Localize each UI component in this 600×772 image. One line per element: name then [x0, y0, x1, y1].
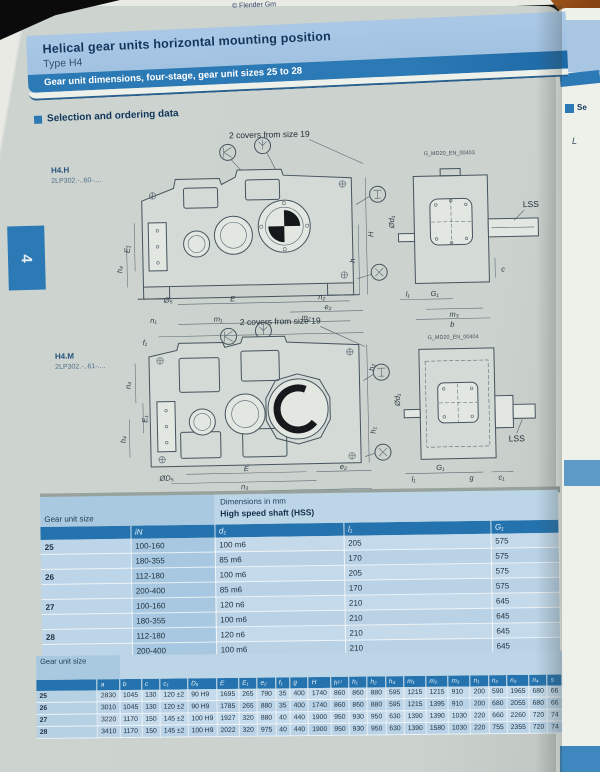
- dim-label: G₁: [430, 289, 439, 298]
- column-header: m₁: [404, 676, 426, 687]
- table-cell: 2260: [507, 709, 529, 721]
- table-cell: 440: [290, 724, 308, 736]
- table-cell: 200: [470, 698, 488, 710]
- technical-drawings: H4.H 2LP302.-..60-.... 2 covers from siz…: [24, 118, 564, 501]
- table-cell: 145 ±2: [160, 713, 188, 725]
- table-cell: 660: [489, 710, 507, 722]
- table-cell: 400: [290, 688, 308, 700]
- dim-label: n₄: [123, 382, 132, 389]
- dim-label: l₁: [411, 474, 416, 483]
- dim-label: E₁: [140, 415, 149, 423]
- end-view-h4h: LSS Ød₁ l₁ G₁ m₃ b c: [386, 167, 542, 330]
- drawing-h4m: H4.M 2LP302.-..61-.... 2 covers from siz…: [54, 311, 537, 502]
- table-cell: 595: [385, 687, 403, 699]
- table-cell: 630: [386, 723, 404, 735]
- table-cell: 590: [488, 686, 506, 698]
- table-cell: 400: [290, 700, 308, 712]
- dimension-table: Gear unit size abcc₁D₅EE₁e₂f₁gHh¹⁾h₁h₂h₄…: [36, 650, 563, 739]
- table-cell: 27: [41, 598, 131, 614]
- table-cell: 28: [37, 726, 98, 739]
- table-cell: 26: [41, 568, 131, 584]
- table-cell: 1030: [448, 710, 470, 722]
- table-cell: 150: [142, 725, 160, 737]
- table-cell: 680: [489, 698, 507, 710]
- dim-label: G₁: [436, 463, 445, 472]
- table-cell: 1740: [308, 699, 330, 711]
- dim-label: h₄: [115, 266, 124, 273]
- section-bullet-square: [34, 115, 42, 123]
- table-cell: 1030: [448, 722, 470, 734]
- dim-label: h₄: [119, 436, 128, 443]
- table-cell: 220: [470, 710, 488, 722]
- page-curvature-shadow: [536, 6, 562, 772]
- order-code: 2LP302.-..61-....: [55, 363, 105, 371]
- table-cell: 120 ±2: [160, 689, 188, 701]
- end-view-h4m: LSS Ød₁ l₁ G₁ g c₁: [392, 347, 537, 484]
- table-cell: 120 ±2: [160, 701, 188, 713]
- dim-label: E₁: [123, 245, 132, 253]
- hss-table: Gear unit size Dimensions in mm High spe…: [40, 490, 560, 660]
- table-cell: 40: [276, 724, 291, 736]
- table-cell: 180-355: [131, 552, 215, 568]
- table-cell: 25: [36, 690, 97, 702]
- table-cell: 790: [257, 688, 275, 700]
- column-header: n₁: [470, 675, 488, 686]
- table-cell: 880: [257, 700, 275, 712]
- table-cell: 1395: [426, 698, 448, 710]
- table-cell: 910: [448, 686, 470, 698]
- dim-label: Ø₅: [163, 296, 173, 305]
- column-header: n₃: [507, 675, 529, 686]
- table-cell: 1045: [120, 701, 142, 713]
- table-cell: 265: [239, 700, 257, 712]
- table-cell: 950: [331, 711, 349, 723]
- table-cell: 860: [331, 699, 349, 711]
- table-cell: 930: [349, 723, 367, 735]
- column-header: b: [119, 679, 141, 690]
- table-cell: 1580: [426, 722, 448, 734]
- table-cell: 320: [239, 724, 257, 736]
- table-cell: 40: [276, 712, 291, 724]
- table-cell: 1170: [120, 713, 142, 725]
- covers-note: 2 covers from size 19: [229, 129, 310, 141]
- column-header: e₂: [257, 677, 275, 688]
- column-header: g: [290, 677, 308, 688]
- next-page-edge: Se L: [556, 8, 600, 772]
- table-cell: 28: [42, 628, 132, 644]
- next-page-bottom-band: [560, 746, 600, 772]
- table-cell: 1900: [309, 711, 331, 723]
- dim-label: c₁: [498, 473, 505, 482]
- table-cell: 1170: [120, 725, 142, 737]
- hss-dimension-table: iNd₁l₁G₁ 25100-160100 m6205575180-35585 …: [40, 520, 560, 660]
- table-cell: 950: [367, 723, 385, 735]
- table-cell: 25: [41, 539, 131, 555]
- column-header: h¹⁾: [330, 677, 348, 688]
- table-cell: 3410: [98, 726, 120, 738]
- column-header: n₂: [488, 675, 506, 686]
- column-header: [36, 679, 97, 691]
- table-cell: 130: [142, 701, 160, 713]
- table-cell: 595: [386, 699, 404, 711]
- table-cell: [41, 583, 131, 599]
- hss-table-corner-label: Gear unit size: [40, 495, 214, 527]
- table-cell: 1927: [217, 712, 239, 724]
- oil-dipstick-icon: [254, 137, 277, 172]
- table-cell: 440: [290, 712, 308, 724]
- dim-label: g: [469, 473, 474, 482]
- table-cell: 1695: [217, 689, 239, 701]
- table-cell: 2355: [507, 721, 529, 733]
- table-cell: 930: [349, 711, 367, 723]
- column-header: m₂: [426, 676, 448, 687]
- table-cell: 2830: [97, 690, 119, 702]
- next-page-bullet-square: [565, 104, 574, 113]
- table-cell: 200-400: [131, 582, 215, 598]
- next-page-text-snippet: L: [572, 136, 577, 146]
- table-cell: 880: [257, 712, 275, 724]
- table-cell: 90 H9: [188, 689, 217, 701]
- doc-id: G_MD20_EN_00403: [424, 150, 475, 157]
- oil-drain-icon: [357, 264, 387, 281]
- table-cell: 35: [275, 700, 290, 712]
- column-header: E₁: [239, 678, 257, 689]
- table-cell: 100 H9: [188, 725, 217, 737]
- dim-table-top-band: [120, 650, 562, 679]
- column-header: [40, 526, 130, 540]
- table-cell: 150: [142, 713, 160, 725]
- table-cell: 145 ±2: [160, 725, 188, 737]
- table-cell: 112-180: [132, 627, 216, 643]
- dim-label: m₁: [214, 314, 223, 323]
- photo-of-catalog-page: Se L © Flender Gm 4 Helical gear units h…: [0, 0, 600, 772]
- column-header: E: [216, 678, 238, 689]
- dim-table-corner-label: Gear unit size: [36, 655, 120, 680]
- table-cell: 1390: [426, 710, 448, 722]
- table-cell: 3010: [97, 702, 119, 714]
- table-cell: 880: [367, 699, 385, 711]
- table-cell: 1390: [404, 722, 426, 734]
- table-cell: 860: [330, 688, 348, 700]
- dim-label: H: [366, 231, 375, 237]
- dim-label: Ød₁: [387, 215, 396, 229]
- table-cell: 950: [331, 723, 349, 735]
- dim-label: h₁: [368, 426, 377, 433]
- dim-label: h: [348, 259, 357, 263]
- order-code: 2LP302.-..60-....: [51, 177, 101, 185]
- dim-label: e₂: [324, 302, 331, 311]
- table-cell: [41, 553, 131, 569]
- table-cell: 630: [386, 711, 404, 723]
- table-cell: 2055: [507, 697, 529, 709]
- covers-note: 2 covers from size 19: [240, 315, 321, 327]
- column-header: c: [141, 679, 159, 690]
- dim-label: E: [230, 294, 236, 303]
- oil-level-icon: [355, 186, 385, 205]
- table-cell: 35: [275, 688, 290, 700]
- column-header: m₃: [448, 675, 470, 686]
- column-header: f₁: [275, 677, 290, 688]
- hss-subtitle: High speed shaft (HSS): [220, 504, 558, 519]
- dim-label: n₁: [150, 316, 157, 325]
- dim-label: f₁: [143, 338, 148, 347]
- next-page-text-snippet: Se: [577, 103, 587, 112]
- table-cell: 112-180: [131, 567, 215, 583]
- table-cell: 100 H9: [188, 713, 217, 725]
- table-cell: 265: [239, 689, 257, 701]
- dim-label: Ød₁: [393, 393, 402, 407]
- table-cell: 100-160: [131, 538, 215, 554]
- table-cell: 1215: [426, 687, 448, 699]
- table-cell: 1965: [507, 686, 529, 698]
- lss-label: LSS: [509, 433, 526, 443]
- doc-id: G_MD20_EN_00404: [427, 334, 478, 341]
- table-cell: 975: [257, 724, 275, 736]
- table-cell: 1900: [309, 723, 331, 735]
- table-cell: 1215: [404, 698, 426, 710]
- table-cell: 1740: [308, 688, 330, 700]
- table-cell: 1045: [119, 690, 141, 702]
- table-cell: 90 H9: [188, 701, 217, 713]
- dim-label: c: [501, 265, 505, 274]
- dim-label: h₂: [367, 364, 376, 371]
- column-header: h₁: [349, 677, 367, 688]
- table-cell: 1390: [404, 710, 426, 722]
- table-cell: 2022: [217, 724, 239, 736]
- table-cell: 1215: [404, 687, 426, 699]
- table-cell: 950: [367, 711, 385, 723]
- dim-label: m₃: [449, 310, 458, 319]
- dim-label: b: [450, 320, 454, 329]
- table-cell: 860: [349, 688, 367, 700]
- table-cell: 100-160: [131, 597, 215, 613]
- table-cell: 220: [470, 722, 488, 734]
- dim-label: ØD₅: [158, 474, 173, 483]
- gear-unit-dimension-table: abcc₁D₅EE₁e₂f₁gHh¹⁾h₁h₂h₄m₁m₂m₃n₁n₂n₃n₄s…: [36, 674, 563, 739]
- table-cell: 180-355: [132, 612, 216, 628]
- dim-label: e₂: [340, 462, 347, 471]
- column-header: a: [97, 679, 119, 690]
- table-cell: 1785: [217, 700, 239, 712]
- table-cell: 860: [349, 699, 367, 711]
- table-cell: 130: [142, 690, 160, 702]
- dim-label: l₁: [406, 290, 411, 299]
- table-cell: 755: [489, 722, 507, 734]
- table-cell: 3220: [98, 714, 120, 726]
- column-header: c₁: [160, 678, 188, 689]
- model-label: H4.H: [51, 166, 70, 175]
- column-header: D₅: [188, 678, 217, 689]
- table-cell: 880: [367, 687, 385, 699]
- column-header: h₄: [385, 676, 403, 687]
- table-cell: [42, 613, 132, 629]
- column-header: iN: [130, 525, 214, 539]
- dim-label: n₂: [318, 292, 325, 301]
- table-cell: 910: [448, 698, 470, 710]
- table-cell: 320: [239, 712, 257, 724]
- table-cell: 200: [470, 686, 488, 698]
- column-header: H: [308, 677, 330, 688]
- model-label: H4.M: [55, 352, 75, 361]
- next-page-table-band: [564, 460, 600, 486]
- table-cell: 26: [36, 702, 97, 715]
- column-header: h₂: [367, 676, 385, 687]
- drawings-svg: H4.H 2LP302.-..60-.... 2 covers from siz…: [24, 118, 564, 501]
- table-cell: 27: [37, 714, 98, 727]
